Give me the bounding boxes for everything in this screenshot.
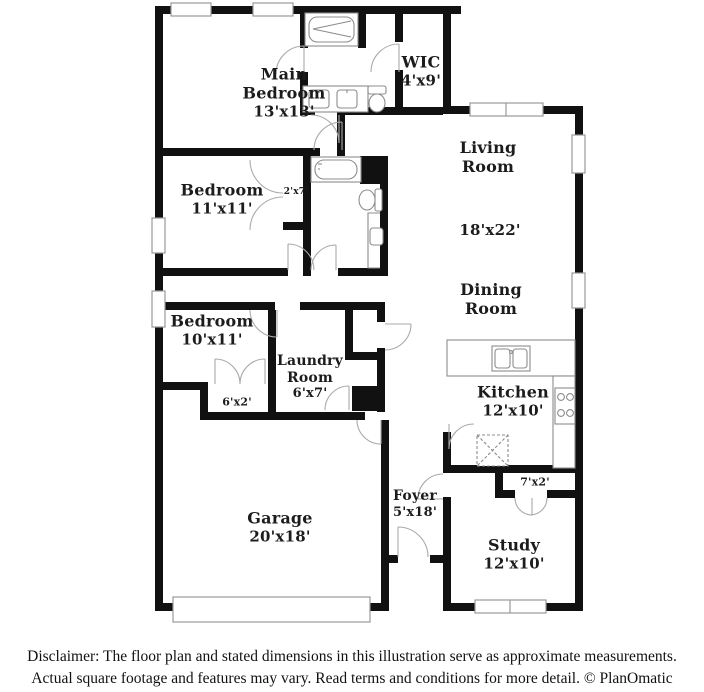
room-label-study: Study 12'x10' [459, 537, 569, 574]
room-name: Foyer [380, 488, 450, 505]
toilet-main-bath [368, 86, 386, 112]
toilet-bath2 [359, 189, 382, 211]
room-name: Main Bedroom [224, 65, 344, 103]
room-label-laundry-room: Laundry Room 6'x7' [263, 353, 358, 401]
room-name: Garage [220, 510, 340, 529]
room-dims: 12'x10' [459, 556, 569, 574]
room-label-bedroom-10: Bedroom 10'x11' [152, 313, 272, 350]
disclaimer-line-1: Disclaimer: The floor plan and stated di… [0, 646, 704, 668]
room-label-foyer: Foyer 5'x18' [380, 488, 450, 520]
closet-label-2x7: 2'x7' [284, 187, 308, 197]
room-dims: 5'x18' [380, 505, 450, 520]
pantry [477, 435, 508, 466]
room-label-garage: Garage 20'x18' [220, 510, 340, 547]
room-name: Bedroom [152, 313, 272, 332]
room-label-main-bedroom: Main Bedroom 13'x13' [224, 65, 344, 120]
room-label-living-room: Living Room [448, 139, 528, 177]
room-name: Laundry Room [263, 353, 358, 386]
room-dims: 12'x10' [458, 403, 568, 421]
room-label-wic: WIC 4'x9' [391, 54, 451, 91]
room-label-living-room-dims: 18'x22' [445, 222, 535, 240]
bathtub [311, 157, 361, 182]
closet-label-7x2: 7'x2' [520, 476, 550, 489]
room-name: Living Room [448, 139, 528, 177]
disclaimer-line-2: Actual square footage and features may v… [0, 668, 704, 690]
room-dims: 20'x18' [220, 529, 340, 547]
floor-plan-page: Main Bedroom 13'x13' WIC 4'x9' Bedroom 1… [0, 0, 704, 692]
kitchen-island [447, 340, 575, 376]
room-label-dining-room: Dining Room [446, 281, 536, 319]
room-name: Study [459, 537, 569, 556]
room-name: Bedroom [162, 182, 282, 201]
room-name: Kitchen [458, 384, 568, 403]
room-dims: 11'x11' [162, 201, 282, 219]
room-dims: 6'x7' [263, 386, 358, 401]
room-label-kitchen: Kitchen 12'x10' [458, 384, 568, 421]
shower [305, 13, 358, 46]
closet-label-6x2: 6'x2' [222, 396, 252, 409]
room-dims: 4'x9' [391, 73, 451, 91]
disclaimer: Disclaimer: The floor plan and stated di… [0, 646, 704, 689]
room-name: WIC [391, 54, 451, 73]
floor-plan-drawing [0, 0, 704, 692]
garage-door [173, 597, 370, 622]
room-dims: 13'x13' [224, 103, 344, 121]
room-dims: 18'x22' [445, 222, 535, 240]
room-dims: 10'x11' [152, 332, 272, 350]
room-label-bedroom-11: Bedroom 11'x11' [162, 182, 282, 219]
room-name: Dining Room [446, 281, 536, 319]
